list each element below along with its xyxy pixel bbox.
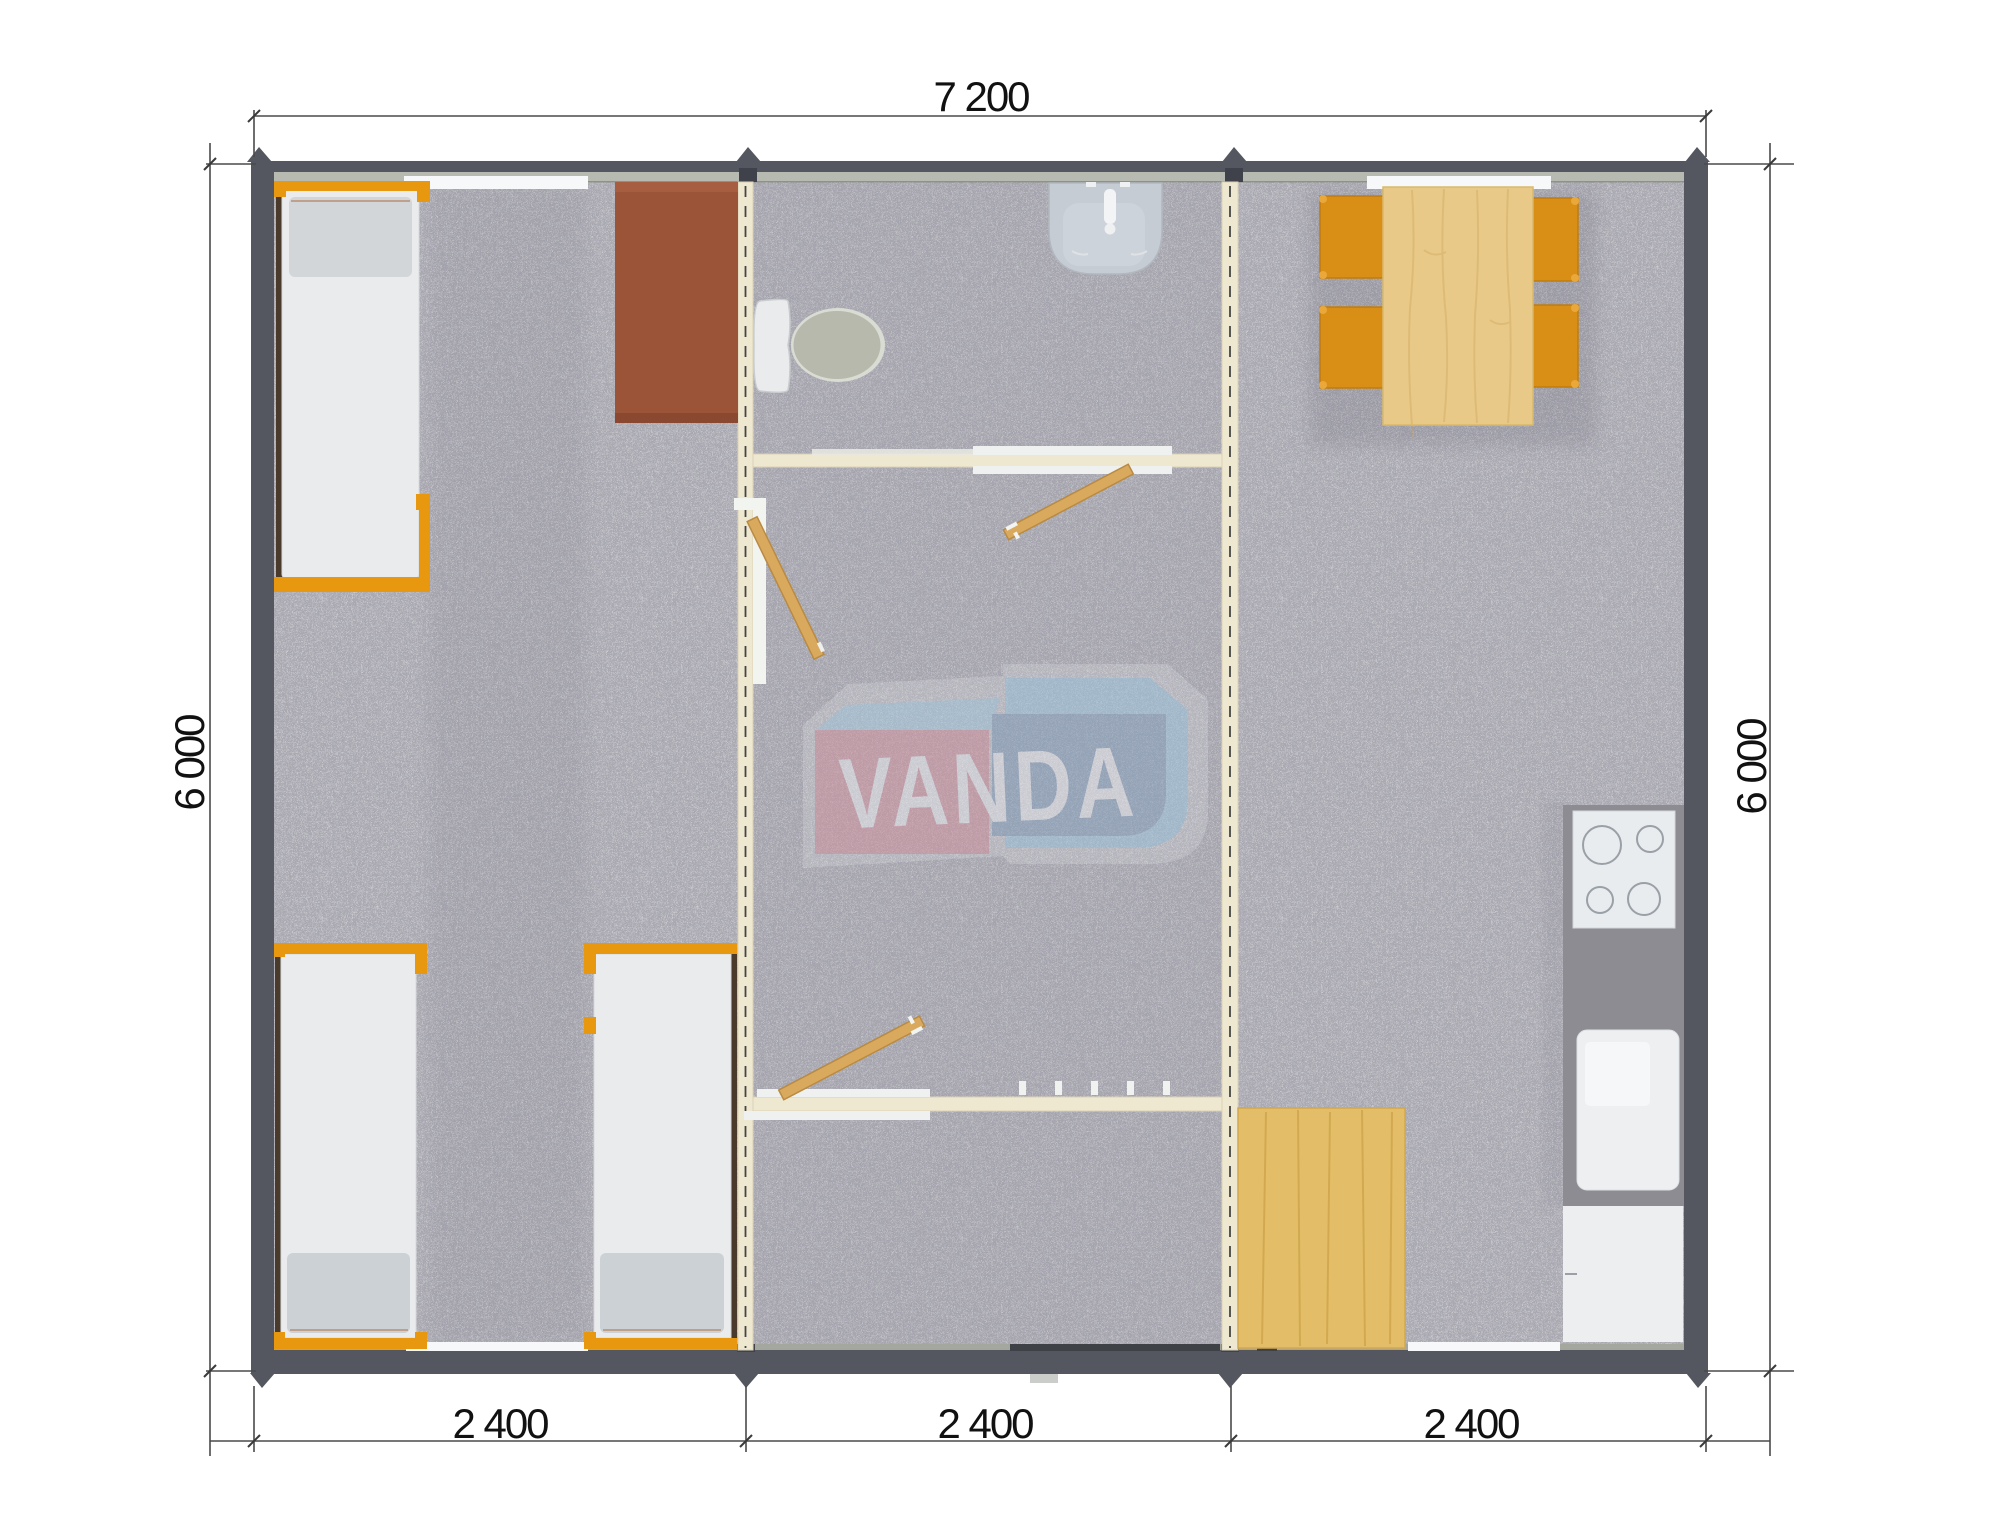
- svg-text:7 200: 7 200: [933, 73, 1029, 120]
- svg-text:2 400: 2 400: [452, 1400, 548, 1447]
- svg-text:2 400: 2 400: [1423, 1400, 1519, 1447]
- svg-text:6 000: 6 000: [1728, 719, 1775, 815]
- svg-text:6 000: 6 000: [166, 715, 213, 811]
- svg-text:VANDA: VANDA: [837, 726, 1140, 850]
- svg-text:2 400: 2 400: [937, 1400, 1033, 1447]
